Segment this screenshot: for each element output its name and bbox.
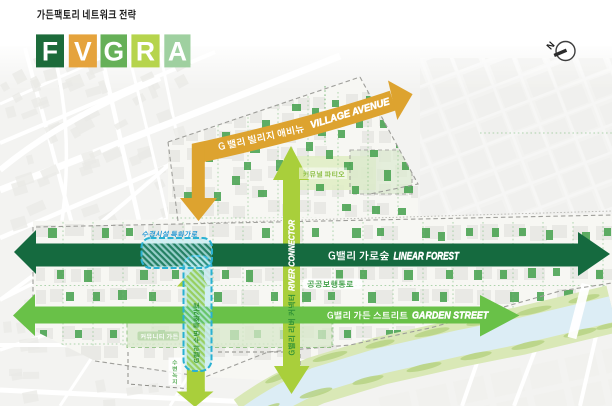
svg-text:R: R <box>136 37 155 67</box>
svg-text:A: A <box>168 37 187 67</box>
svg-text:F: F <box>42 37 58 67</box>
svg-text:RIVER CONNECTOR: RIVER CONNECTOR <box>287 220 297 291</box>
svg-text:V: V <box>74 37 92 67</box>
svg-text:G: G <box>103 37 124 67</box>
svg-text:GARDEN STREET: GARDEN STREET <box>412 310 489 322</box>
svg-text:LINEAR FOREST: LINEAR FOREST <box>394 250 460 263</box>
